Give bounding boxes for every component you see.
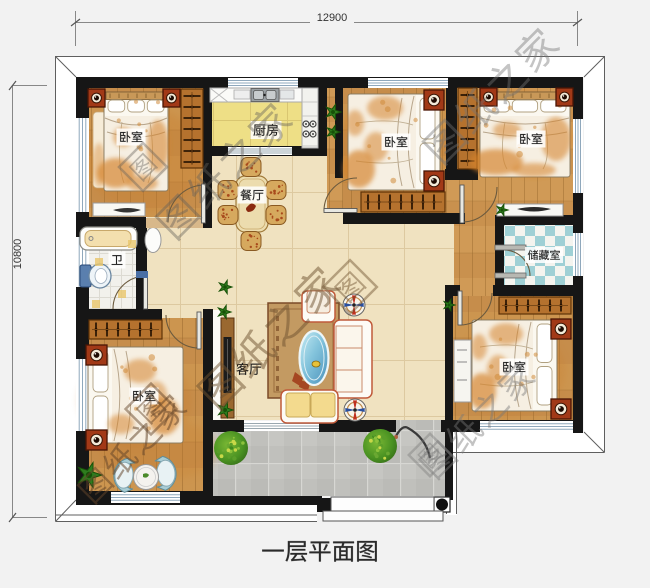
svg-text:10800: 10800 <box>12 239 24 270</box>
svg-text:12900: 12900 <box>317 12 348 24</box>
